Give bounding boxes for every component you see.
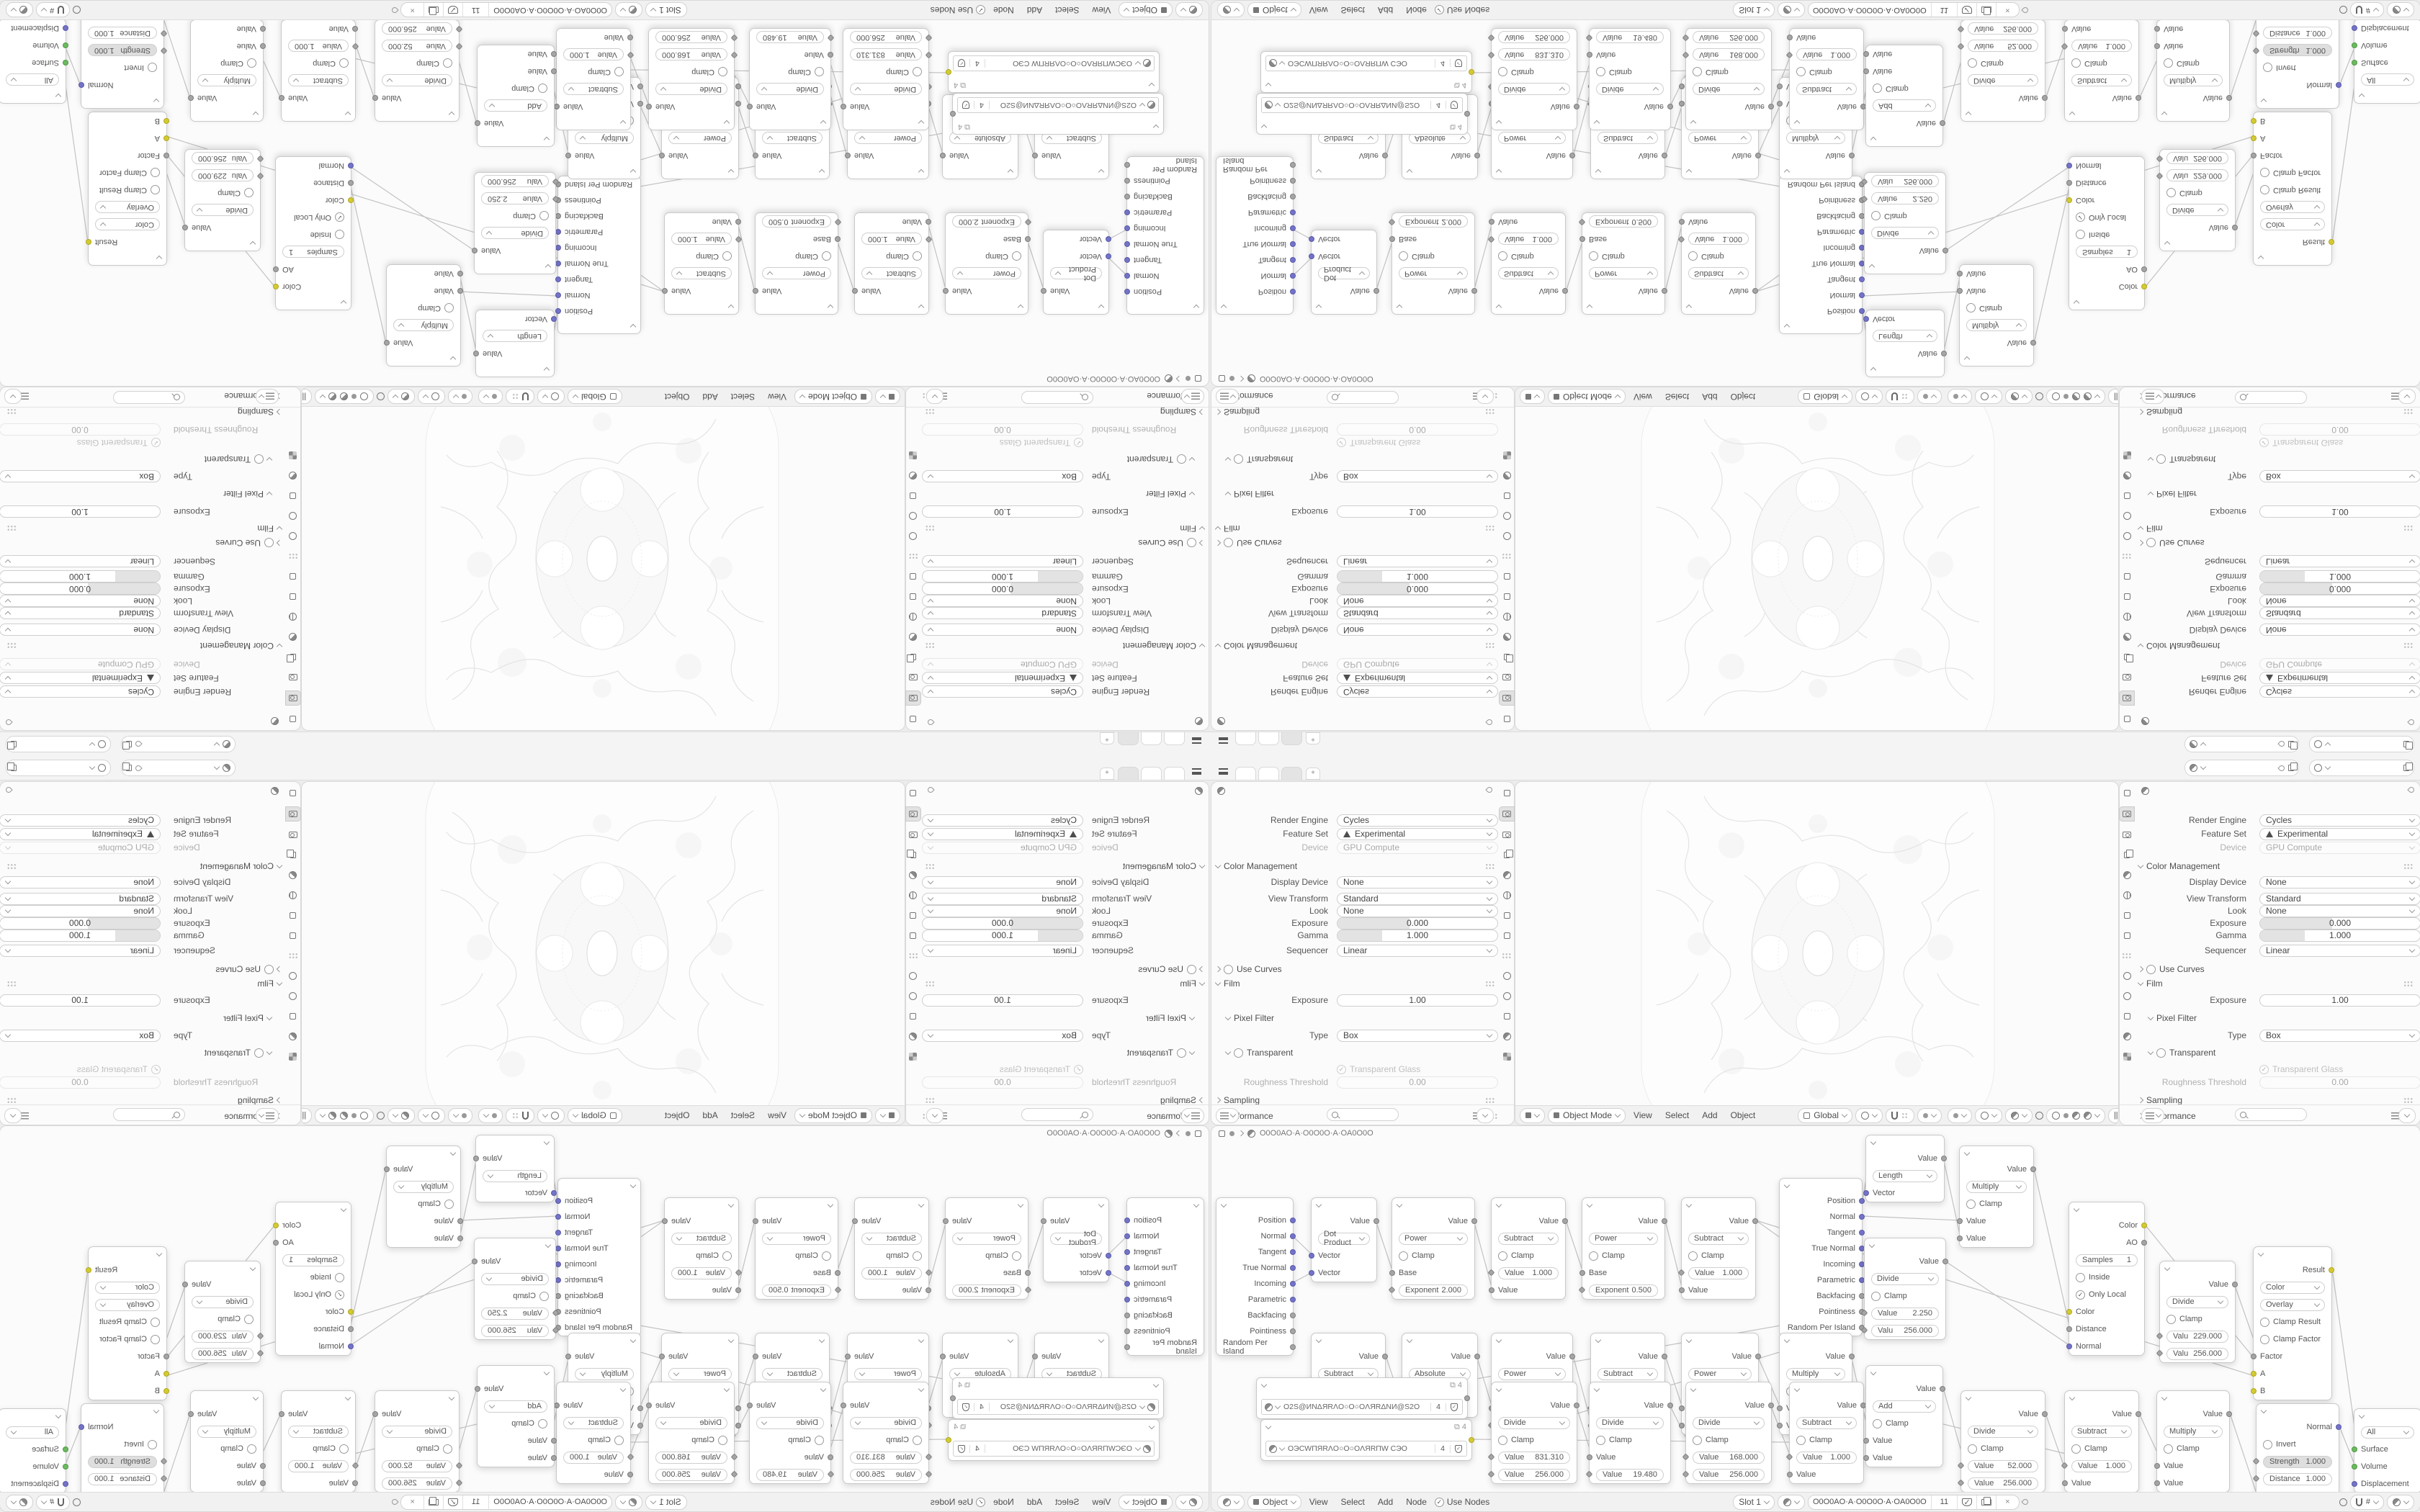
gizmos-dropdown[interactable] — [448, 1108, 472, 1123]
collapse-chevron-icon[interactable] — [918, 1336, 924, 1342]
value-field-samples[interactable]: Samples1 — [282, 1254, 344, 1266]
input-socket[interactable] — [260, 1480, 266, 1486]
fake-user-button[interactable]: ✓ — [444, 1495, 463, 1509]
prop-dropdown-render-engine[interactable]: Cycles — [2259, 686, 2420, 698]
collapse-chevron-icon[interactable] — [2161, 112, 2167, 117]
output-socket[interactable] — [1290, 1313, 1296, 1318]
input-socket[interactable] — [2061, 43, 2069, 50]
group-datablock[interactable]: O2S@ИNΔЯRΛO○O○OΛЯRΔNИ@S2O4✓ — [957, 1399, 1159, 1415]
operation-dropdown[interactable]: Divide — [1498, 1417, 1570, 1429]
new-material-button[interactable] — [424, 4, 444, 17]
math-subtract-2[interactable]: ValueSubtractClampValue1.000Value — [1681, 212, 1756, 315]
collapse-chevron-icon[interactable] — [345, 112, 351, 117]
geometry-1[interactable]: PositionNormalTangentTrue NormalIncoming… — [1216, 1197, 1294, 1356]
menu-node[interactable]: Node — [1401, 1497, 1432, 1507]
vector-math-dot[interactable]: ValueDot ProductVectorVector — [1043, 230, 1109, 315]
snap-controls[interactable]: # — [36, 3, 70, 18]
prop-dropdown-view-transform[interactable]: Standard — [922, 893, 1083, 905]
math-divide-168[interactable]: ValueDivideClampValue168.000Value256.000 — [648, 1382, 735, 1484]
operation-dropdown[interactable]: All — [6, 1426, 59, 1439]
output-socket[interactable] — [946, 69, 951, 75]
checkbox-clamp-result[interactable] — [2260, 186, 2269, 195]
input-socket[interactable] — [1863, 68, 1869, 74]
pin-icon[interactable] — [2407, 786, 2415, 793]
operation-dropdown[interactable]: Multiply — [1966, 1181, 2027, 1193]
input-socket[interactable] — [163, 1388, 169, 1394]
editor-type-button[interactable] — [2141, 1108, 2164, 1123]
input-socket[interactable] — [926, 1471, 933, 1478]
input-socket[interactable] — [637, 101, 643, 107]
prop-dropdown-render-engine[interactable]: Cycles — [2259, 814, 2420, 827]
output-socket[interactable] — [1290, 225, 1296, 231]
app-menu-icon[interactable] — [1192, 768, 1201, 775]
output-socket[interactable] — [1124, 162, 1130, 168]
prop-dropdown-display-device[interactable]: None — [1337, 624, 1498, 636]
panel-header-pixel-filter[interactable]: Pixel Filter — [2138, 1012, 2416, 1024]
input-socket[interactable] — [2156, 1350, 2164, 1357]
math-multiply-3[interactable]: ValueMultiplyClampValueValue — [2156, 19, 2230, 122]
panel-header-transparent[interactable]: Transparent — [2138, 454, 2416, 465]
operation-dropdown[interactable]: Multiply — [2164, 1426, 2223, 1438]
input-socket[interactable] — [2251, 118, 2257, 124]
operation-dropdown[interactable]: Subtract — [1796, 84, 1857, 96]
menu-view[interactable]: View — [1088, 1497, 1116, 1507]
material-output[interactable]: AllSurfaceVolumeDisplacement — [0, 19, 66, 104]
search-input[interactable] — [1021, 1108, 1093, 1121]
properties-tab-physics-icon[interactable] — [2120, 529, 2134, 543]
prop-dropdown-device[interactable]: GPU Compute — [1337, 659, 1498, 671]
snap-controls[interactable]: # — [2350, 1495, 2384, 1510]
overlays-dropdown[interactable] — [2387, 1495, 2414, 1510]
menu-select[interactable]: Select — [1050, 1497, 1084, 1507]
collapse-chevron-icon[interactable] — [918, 305, 924, 310]
math-subtract-6[interactable]: ValueSubtractClampValue1.000Value — [281, 1390, 356, 1493]
properties-tab-world-icon[interactable] — [906, 888, 920, 902]
collapse-chevron-icon[interactable] — [153, 1407, 159, 1413]
value-field-valu[interactable]: Valu229.000 — [2166, 1331, 2228, 1343]
panel-checkbox[interactable] — [264, 539, 274, 548]
operation-dropdown[interactable]: Divide — [1871, 228, 1939, 240]
operation-dropdown[interactable]: Subtract — [1688, 268, 1749, 280]
output-socket[interactable] — [852, 288, 858, 294]
input-socket[interactable] — [1679, 101, 1685, 107]
input-socket[interactable] — [735, 1269, 743, 1277]
math-multiply-1[interactable]: ValueMultiplyClampValueValue — [1959, 1146, 2034, 1248]
node-group-2[interactable]: ⧉ 4OЭCWПЯRΛO○O○OΛЯRПW CЭO4✓ — [1260, 51, 1472, 93]
prop-dropdown-type[interactable]: Box — [2259, 471, 2420, 483]
properties-tab-modifiers-icon[interactable] — [2120, 929, 2134, 942]
input-socket[interactable] — [456, 43, 463, 50]
prop-slider-exposure[interactable]: 0.000 — [922, 917, 1083, 930]
properties-tab-object-icon[interactable] — [286, 909, 300, 922]
menu-view[interactable]: View — [1628, 392, 1657, 402]
math-subtract-1[interactable]: ValueSubtractClampValue1.000Value — [1491, 1197, 1566, 1300]
prop-field-exposure[interactable]: 1.00 — [2259, 994, 2420, 1007]
input-socket[interactable] — [163, 1354, 169, 1359]
options-chevron-button[interactable] — [4, 389, 22, 404]
checkbox-clamp[interactable] — [244, 1315, 254, 1324]
operation-dropdown[interactable]: Multiply — [1966, 320, 2027, 332]
value-field-value[interactable]: Value1.000 — [861, 233, 922, 246]
input-socket[interactable] — [63, 60, 68, 66]
output-socket[interactable] — [1471, 1218, 1477, 1224]
input-socket[interactable] — [348, 1309, 354, 1315]
material-slot-dropdown[interactable]: Slot 1 — [1733, 1495, 1775, 1510]
input-socket[interactable] — [1863, 1438, 1869, 1444]
input-socket[interactable] — [1679, 1405, 1685, 1411]
value-field-exponent[interactable]: Exponent0.500 — [1589, 216, 1658, 228]
output-socket[interactable] — [1290, 1297, 1296, 1302]
mode-dropdown[interactable]: Object Mode — [1548, 1108, 1626, 1123]
input-socket[interactable] — [835, 219, 842, 226]
value-field-valu[interactable]: Valu256.000 — [192, 1348, 254, 1360]
math-divide-229[interactable]: ValueDivideClampValu229.000Valu256.000 — [184, 1261, 261, 1363]
checkbox-clamp[interactable] — [339, 1444, 349, 1454]
material-slot-dropdown[interactable]: Slot 1 — [1733, 3, 1775, 18]
output-socket[interactable] — [2329, 1267, 2334, 1273]
value-field-distance[interactable]: Distance1.000 — [88, 27, 157, 40]
prop-dropdown-device[interactable]: GPU Compute — [2259, 842, 2420, 854]
output-socket[interactable] — [1662, 1218, 1667, 1224]
checkbox-clamp[interactable] — [1012, 252, 1021, 261]
prop-slider-gamma[interactable]: 1.000 — [2259, 571, 2420, 583]
checkbox-clamp[interactable] — [1693, 68, 1702, 77]
collapse-chevron-icon[interactable] — [1784, 169, 1790, 175]
xray-toggle[interactable] — [2005, 390, 2033, 405]
panel-header-use-curves[interactable]: Use Curves — [1216, 963, 1498, 975]
input-socket[interactable] — [63, 1446, 68, 1452]
workspace-tab[interactable] — [1118, 732, 1139, 745]
operation-dropdown[interactable]: Subtract — [1597, 1368, 1658, 1380]
properties-tab-texture-icon[interactable] — [906, 1050, 920, 1063]
transform-orientation-dropdown[interactable]: Global — [1798, 1108, 1852, 1123]
input-socket[interactable] — [735, 1287, 741, 1293]
properties-tab-object-icon[interactable] — [2120, 909, 2134, 922]
input-socket[interactable] — [1106, 236, 1111, 242]
output-socket[interactable] — [555, 1198, 561, 1204]
collapse-chevron-icon[interactable] — [1964, 1149, 1970, 1155]
properties-editor-icon[interactable] — [2141, 717, 2149, 725]
pin-icon[interactable] — [2021, 1498, 2029, 1506]
value-field-valu[interactable]: Valu256.000 — [481, 1325, 549, 1337]
input-socket[interactable] — [352, 26, 358, 32]
input-socket[interactable] — [1579, 236, 1585, 242]
checkbox-clamp[interactable] — [1966, 304, 1976, 313]
output-socket[interactable] — [1849, 153, 1855, 158]
output-socket[interactable] — [1290, 1265, 1296, 1271]
input-socket[interactable] — [735, 1423, 741, 1428]
collapse-chevron-icon[interactable] — [1397, 305, 1402, 310]
operation-dropdown[interactable]: Power — [952, 268, 1021, 280]
output-socket[interactable] — [940, 153, 946, 158]
pin-icon[interactable] — [2407, 718, 2415, 726]
panel-header-film[interactable]: Film — [2138, 978, 2416, 989]
collapse-chevron-icon[interactable] — [544, 1369, 550, 1374]
panel-checkbox[interactable] — [2156, 455, 2166, 464]
output-socket[interactable] — [2329, 239, 2334, 245]
input-socket[interactable] — [1787, 1472, 1793, 1477]
input-socket[interactable] — [551, 1190, 557, 1196]
value-field-value[interactable]: Value168.000 — [655, 1452, 727, 1464]
output-socket[interactable] — [79, 82, 84, 88]
properties-tab-physics-icon[interactable] — [2120, 969, 2134, 983]
value-field-exponent[interactable]: Exponent2.000 — [1399, 216, 1468, 228]
properties-tab-material-icon[interactable] — [2120, 469, 2134, 482]
value-field-exponent[interactable]: Exponent2.000 — [952, 216, 1021, 228]
input-socket[interactable] — [2156, 173, 2164, 180]
properties-tab-view-layer-icon[interactable] — [1500, 650, 1514, 664]
pivot-point-dropdown[interactable] — [537, 390, 565, 405]
input-socket[interactable] — [1309, 236, 1314, 242]
properties-tab-render-icon[interactable] — [285, 806, 301, 822]
properties-tab-texture-icon[interactable] — [906, 449, 920, 462]
input-socket[interactable] — [1106, 1270, 1111, 1276]
collapse-chevron-icon[interactable] — [544, 137, 550, 143]
input-socket[interactable] — [348, 1326, 354, 1332]
operation-dropdown[interactable]: Power — [1399, 268, 1468, 280]
properties-tab-particles-icon[interactable] — [1500, 549, 1514, 563]
collapse-chevron-icon[interactable] — [828, 1201, 833, 1207]
prop-slider-exposure[interactable]: 0.000 — [1337, 917, 1498, 930]
xray-toggle[interactable] — [387, 1108, 415, 1123]
view-layer-name-field[interactable] — [2334, 739, 2400, 750]
operation-dropdown[interactable]: Divide — [2166, 204, 2228, 217]
geometry-2[interactable]: PositionNormalTangentTrue NormalIncoming… — [1779, 176, 1863, 334]
collapse-chevron-icon[interactable] — [918, 1201, 924, 1207]
use-nodes-checkbox[interactable]: ✓ — [1435, 1498, 1444, 1507]
properties-editor-icon[interactable] — [271, 717, 279, 725]
math-add-1[interactable]: ValueAddClampValueValue — [1865, 1365, 1943, 1467]
collapse-chevron-icon[interactable] — [820, 1385, 826, 1391]
value-field-value[interactable]: Value256.000 — [1693, 32, 1765, 44]
copy-icon[interactable] — [11, 765, 17, 771]
fake-user-button[interactable]: ✓ — [1957, 4, 1976, 17]
collapse-chevron-icon[interactable] — [250, 241, 256, 247]
scene-selector[interactable] — [121, 760, 236, 776]
collapse-chevron-icon[interactable] — [1008, 169, 1013, 175]
collapse-chevron-icon[interactable] — [1407, 1336, 1412, 1342]
output-socket[interactable] — [279, 1411, 284, 1417]
panel-header-pixel-filter[interactable]: Pixel Filter — [4, 1012, 282, 1024]
output-socket[interactable] — [86, 239, 91, 245]
properties-tab-output-icon[interactable] — [2120, 670, 2134, 684]
operation-dropdown[interactable]: Power — [854, 132, 922, 145]
output-socket[interactable] — [845, 153, 851, 158]
value-field-value[interactable]: Value831.310 — [1498, 1452, 1570, 1464]
math-power-2[interactable]: ValuePowerClampBaseExponent0.500 — [755, 212, 838, 315]
properties-tab-view-layer-icon[interactable] — [2120, 650, 2134, 664]
prop-dropdown-sequencer[interactable]: Linear — [2259, 556, 2420, 568]
operation-dropdown[interactable]: Power — [1498, 1368, 1566, 1380]
properties-editor-icon[interactable] — [1217, 787, 1225, 795]
value-field-value[interactable]: Value256.000 — [655, 32, 727, 44]
value-field-value[interactable]: Value1.000 — [1796, 49, 1857, 61]
math-add-1[interactable]: ValueAddClampValueValue — [477, 45, 555, 147]
shader-type-dropdown[interactable]: Object — [1247, 3, 1301, 18]
properties-tab-constraints-icon[interactable] — [286, 989, 300, 1003]
properties-tab-constraints-icon[interactable] — [2120, 509, 2134, 523]
panel-checkbox[interactable] — [1224, 965, 1233, 974]
output-socket[interactable] — [1124, 1297, 1130, 1302]
collapse-chevron-icon[interactable] — [450, 356, 456, 362]
input-socket[interactable] — [161, 1475, 168, 1482]
overlays-dropdown[interactable] — [6, 3, 33, 18]
input-socket[interactable] — [2352, 1464, 2357, 1470]
shader-node-editor[interactable]: O0O0AO·A·O0O0O·A·OA0O0O PositionNormalTa… — [0, 0, 1209, 387]
output-socket[interactable] — [475, 1386, 480, 1392]
math-power-1[interactable]: ValuePowerClampBaseExponent2.000 — [945, 212, 1028, 315]
input-socket[interactable] — [260, 43, 266, 49]
material-output[interactable]: AllSurfaceVolumeDisplacement — [2354, 19, 2420, 104]
operation-dropdown[interactable]: Color — [95, 219, 160, 231]
properties-tab-constraints-icon[interactable] — [906, 989, 920, 1003]
menu-object[interactable]: Object — [1726, 392, 1761, 402]
prop-dropdown-type[interactable]: Box — [0, 1030, 161, 1042]
output-socket[interactable] — [475, 120, 480, 126]
node-group-2[interactable]: ⧉ 4OЭCWПЯRΛO○O○OΛЯRПW CЭO4✓ — [1260, 1419, 1472, 1461]
output-socket[interactable] — [1124, 1313, 1130, 1318]
value-field-exponent[interactable]: Exponent2.000 — [952, 1284, 1021, 1297]
math-divide-52[interactable]: ValueDivideClampValue52.000Value256.000 — [375, 1390, 460, 1493]
value-field-value[interactable]: Value1.000 — [1498, 233, 1559, 246]
input-socket[interactable] — [456, 26, 463, 33]
collapse-chevron-icon[interactable] — [2069, 112, 2075, 117]
input-socket[interactable] — [2156, 156, 2164, 163]
menu-select[interactable]: Select — [726, 392, 760, 402]
add-workspace-button[interactable]: + — [1100, 768, 1114, 780]
value-field-distance[interactable]: Distance1.000 — [2263, 1473, 2332, 1485]
checkbox-clamp[interactable] — [1498, 1436, 1507, 1445]
input-socket[interactable] — [1777, 1405, 1783, 1411]
view-layer-selector[interactable] — [2309, 760, 2414, 776]
editor-type-button[interactable] — [1181, 389, 1204, 404]
material-user-count[interactable]: 11 — [463, 1495, 489, 1509]
output-socket[interactable] — [1124, 178, 1130, 184]
collapse-chevron-icon[interactable] — [341, 300, 346, 306]
output-socket[interactable] — [950, 1395, 956, 1401]
operation-dropdown[interactable]: Power — [1589, 268, 1658, 280]
vector-math-length[interactable]: ValueLengthVector — [475, 1135, 555, 1202]
collapse-chevron-icon[interactable] — [545, 264, 551, 270]
math-power-1[interactable]: ValuePowerClampBaseExponent2.000 — [1391, 1197, 1475, 1300]
workspace-tab[interactable] — [1235, 732, 1256, 745]
input-socket[interactable] — [1679, 84, 1685, 89]
menu-view[interactable]: View — [1304, 5, 1333, 15]
menu-select[interactable]: Select — [1660, 392, 1694, 402]
math-divide-52[interactable]: ValueDivideClampValue52.000Value256.000 — [1960, 1390, 2045, 1493]
math-divide-19[interactable]: ValueDivideClampValueValue19.480 — [749, 28, 831, 130]
checkbox-clamp[interactable] — [2164, 1444, 2173, 1454]
collapse-chevron-icon[interactable] — [545, 1241, 551, 1247]
operation-dropdown[interactable]: Dot Product — [1318, 1233, 1370, 1245]
search-input[interactable] — [2235, 391, 2307, 404]
shading-mode-buttons[interactable] — [2046, 390, 2105, 405]
panel-header-transparent[interactable]: Transparent — [1216, 1047, 1498, 1058]
pause-button[interactable]: || — [301, 1108, 312, 1123]
output-socket[interactable] — [554, 1403, 560, 1408]
operation-dropdown[interactable]: Power — [668, 1368, 732, 1380]
output-socket[interactable] — [1768, 1403, 1774, 1408]
input-socket[interactable] — [2352, 1481, 2357, 1487]
panel-header-color-management[interactable]: Color Management — [1216, 640, 1498, 652]
collapse-chevron-icon[interactable] — [630, 324, 636, 330]
properties-tab-material-icon[interactable] — [1500, 1030, 1514, 1043]
copy-icon[interactable] — [2288, 765, 2294, 771]
mix-color[interactable]: ResultColorOverlayClamp ResultClamp Fact… — [2253, 112, 2332, 266]
value-field-value[interactable]: Value256.000 — [1498, 1469, 1570, 1481]
render-preview-toggle[interactable] — [2035, 1112, 2043, 1120]
value-field-value[interactable]: Value52.000 — [382, 1460, 452, 1472]
group-datablock[interactable]: OЭCWПЯRΛO○O○OΛЯRПW CЭO4✓ — [953, 55, 1155, 71]
math-multiply-1[interactable]: ValueMultiplyClampValueValue — [1959, 264, 2034, 366]
input-socket[interactable] — [1777, 101, 1783, 107]
collapse-chevron-icon[interactable] — [1869, 1241, 1875, 1247]
editor-type-button[interactable] — [1520, 1108, 1545, 1123]
editor-type-button[interactable] — [1217, 1495, 1245, 1510]
checkbox-clamp[interactable] — [913, 1436, 922, 1445]
properties-tab-particles-icon[interactable] — [2120, 549, 2134, 563]
collapse-chevron-icon[interactable] — [1261, 125, 1267, 130]
collapse-chevron-icon[interactable] — [1784, 1182, 1790, 1187]
operation-dropdown[interactable]: Subtract — [563, 84, 624, 96]
output-socket[interactable] — [1574, 1403, 1579, 1408]
math-multiply-3[interactable]: ValueMultiplyClampValueValue — [2156, 1390, 2230, 1493]
input-socket[interactable] — [1787, 35, 1793, 40]
mix-color[interactable]: ResultColorOverlayClamp ResultClamp Fact… — [88, 112, 167, 266]
input-socket[interactable] — [1863, 1190, 1869, 1196]
editor-type-button[interactable] — [875, 1108, 900, 1123]
input-socket[interactable] — [731, 52, 738, 59]
properties-tab-scene-icon[interactable] — [2120, 868, 2134, 882]
output-socket[interactable] — [1859, 1230, 1865, 1236]
prop-field-exposure[interactable]: 1.00 — [1337, 506, 1498, 518]
group-user-count[interactable]: 4 — [1435, 59, 1450, 68]
value-field-value[interactable]: Value1.000 — [288, 40, 349, 53]
output-socket[interactable] — [372, 95, 378, 101]
operation-dropdown[interactable]: Divide — [1693, 1417, 1765, 1429]
prop-field-exposure[interactable]: 1.00 — [0, 506, 161, 518]
overlays-dropdown[interactable] — [6, 1495, 33, 1510]
menu-view[interactable]: View — [1304, 1497, 1333, 1507]
workspace-tab[interactable] — [1164, 732, 1185, 745]
group-name-field[interactable]: OЭCWПЯRΛO○O○OΛЯRПW CЭO — [985, 59, 1136, 68]
value-field-value[interactable]: Value256.000 — [1498, 32, 1570, 44]
output-socket[interactable] — [188, 95, 194, 101]
checkbox-clamp[interactable] — [1498, 252, 1507, 261]
math-divide-229[interactable]: ValueDivideClampValu229.000Valu256.000 — [2159, 149, 2236, 251]
input-socket[interactable] — [457, 1218, 463, 1224]
properties-tab-texture-icon[interactable] — [2120, 449, 2134, 462]
value-field-exponent[interactable]: Exponent0.500 — [1589, 1284, 1658, 1297]
operation-dropdown[interactable]: Divide — [1693, 84, 1765, 96]
input-socket[interactable] — [63, 25, 68, 31]
output-socket[interactable] — [1752, 1218, 1758, 1224]
collapse-chevron-icon[interactable] — [2164, 1264, 2170, 1270]
input-socket[interactable] — [1309, 1270, 1314, 1276]
workspace-tab[interactable] — [1281, 767, 1302, 780]
panel-header-film[interactable]: Film — [2138, 523, 2416, 534]
prop-slider-exposure[interactable]: 0.000 — [0, 917, 161, 930]
value-field-exponent[interactable]: Exponent2.000 — [1399, 1284, 1468, 1297]
collapse-chevron-icon[interactable] — [1397, 1201, 1402, 1207]
editor-type-button[interactable] — [2141, 389, 2164, 404]
output-socket[interactable] — [2336, 82, 2341, 88]
input-socket[interactable] — [1679, 1287, 1685, 1293]
output-socket[interactable] — [384, 340, 390, 346]
prop-slider-exposure[interactable]: 0.000 — [2259, 583, 2420, 595]
input-socket[interactable] — [163, 118, 169, 124]
output-socket[interactable] — [555, 1293, 561, 1299]
